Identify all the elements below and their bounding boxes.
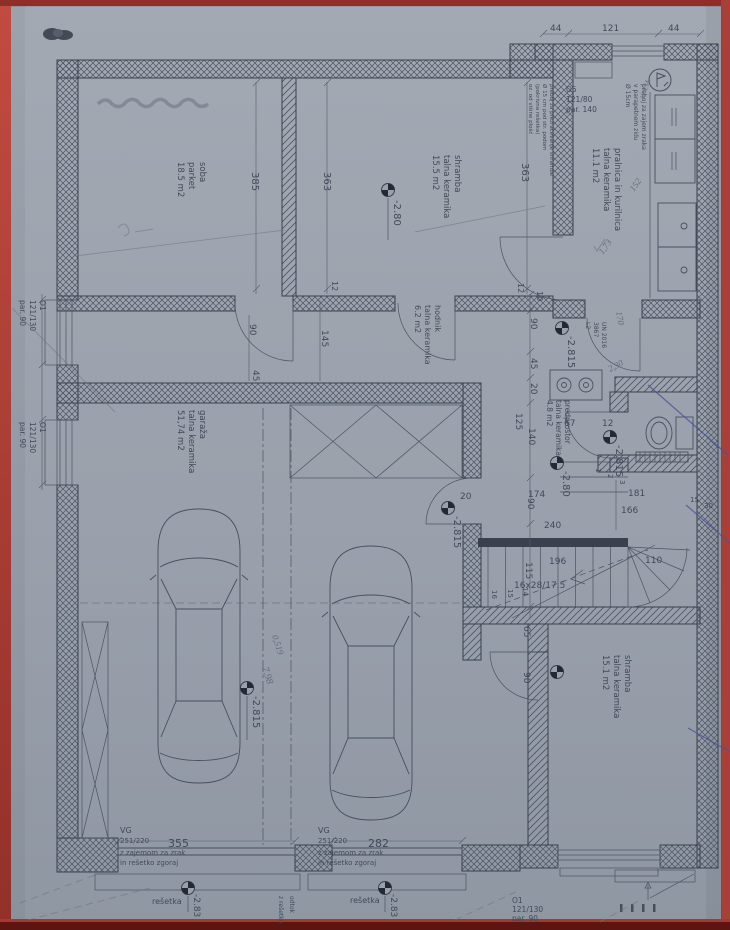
wall-exterior-right xyxy=(697,44,718,868)
note-z-resetko: z rešetko xyxy=(277,896,284,924)
room-pralnica-floor: talna keramika xyxy=(601,148,611,211)
wall-stair-bottom xyxy=(463,607,700,624)
wall-laundry-top-left xyxy=(535,44,612,60)
room-shramba-zg-area: 15.5 m2 xyxy=(430,155,440,190)
room-hodnik-area: 6.2 m2 xyxy=(413,305,422,333)
dim-10-chain: 10 xyxy=(535,291,544,301)
vg-left-size: 251/220 xyxy=(120,837,149,845)
level-label-280-a: -2.80 xyxy=(391,200,402,226)
dim-12-door: 12 xyxy=(330,281,339,291)
label-resetka-right: rešetka xyxy=(350,895,380,905)
vg-right-note2: in rešetko zgoraj xyxy=(318,859,376,867)
room-predprostor-floor: talna keramika xyxy=(554,400,563,456)
paper-shadow-left xyxy=(11,6,25,919)
wall-wc-bottom xyxy=(598,455,697,472)
room-hodnik-name: hodnik xyxy=(433,305,442,332)
level-marker-shramba-zgoraj xyxy=(382,184,395,197)
level-label-2815-c: -2.815 xyxy=(451,516,462,548)
room-garaza-floor: talna keramika xyxy=(186,410,196,473)
wall-garage-hodnik xyxy=(57,383,463,403)
dim-15: 15 xyxy=(690,496,699,504)
wall-wc-left-1 xyxy=(610,392,628,412)
room-shramba-zg-name: shramba xyxy=(452,155,462,192)
room-garaza-area: 51,74 m2 xyxy=(175,410,185,451)
room-shramba-sp-area: 15.1 m2 xyxy=(600,655,610,690)
stair-num-2: 2 xyxy=(606,474,614,478)
room-garaza-name: garaža xyxy=(197,410,207,439)
dim-145: 145 xyxy=(319,330,329,347)
wall-exterior-left-1 xyxy=(57,60,78,300)
red-edge-right xyxy=(721,0,730,930)
un-line3: L2 xyxy=(584,322,591,329)
note-odtok: odtok xyxy=(288,896,295,914)
dim-121: 121 xyxy=(602,24,619,34)
vg-right-size: 251/220 xyxy=(318,837,347,845)
level-marker-wc xyxy=(604,431,617,444)
label-resetka-left: rešetka xyxy=(152,896,182,906)
o1a-code: O1 xyxy=(38,300,47,311)
wall-predprostor-left-1 xyxy=(463,383,481,478)
dim-196: 196 xyxy=(549,557,566,567)
wall-corner-bottom-left xyxy=(57,838,118,872)
note-ps-2: Ø 15 cm pod str. podom xyxy=(541,84,548,150)
room-hodnik-floor: talna keramika xyxy=(423,305,432,365)
note-ps-3: (pokrivna rešetka) xyxy=(534,84,541,134)
stair-num-1: 1 xyxy=(594,468,602,472)
level-marker-shramba-spodaj xyxy=(551,666,564,679)
red-edge-left xyxy=(0,0,11,930)
room-shramba-sp-name: shramba xyxy=(622,655,632,692)
level-label-283-a: -2.83 xyxy=(191,894,201,917)
dim-385: 385 xyxy=(249,172,260,191)
stair-num-15: 15 xyxy=(506,589,514,598)
level-marker-garaza xyxy=(241,682,254,695)
o1c-size: 121/130 xyxy=(512,905,543,914)
o1b-size: 121/130 xyxy=(28,422,37,453)
dim-20-chain: 20 xyxy=(528,383,538,395)
stair-num-14: 14 xyxy=(521,587,529,596)
dim-44-right: 44 xyxy=(668,24,680,34)
dim-65: 65 xyxy=(521,626,531,637)
dim-90-corridor: 90 xyxy=(521,672,531,684)
level-marker-predprostor xyxy=(551,457,564,470)
dim-125: 125 xyxy=(513,413,523,430)
dim-20: 20 xyxy=(460,492,472,502)
wall-predprostor-left-2 xyxy=(463,524,481,607)
dim-30: 30 xyxy=(704,502,713,510)
dim-44-left: 44 xyxy=(550,24,562,34)
wall-exterior-bottom-1 xyxy=(520,845,558,868)
wall-exterior-bottom-2 xyxy=(660,845,700,868)
dim-12-chain: 12 xyxy=(516,283,525,293)
wall-garage-pier-right xyxy=(462,845,520,871)
vg-right-note1: z zajemom za zrak xyxy=(318,849,384,857)
wall-soba-bottom xyxy=(57,296,235,311)
level-label-2815-d: -2.815 xyxy=(250,696,261,728)
dim-45-chain: 45 xyxy=(528,358,538,369)
dim-90-chain: 90 xyxy=(528,318,538,330)
dim-12-wc: 12 xyxy=(602,419,613,429)
o5-code: O5 xyxy=(566,85,577,94)
un-line1: UN 2016 xyxy=(600,322,607,348)
room-pralnica-area: 11.1 m2 xyxy=(590,148,600,183)
dim-45-door: 45 xyxy=(250,370,260,381)
level-label-280-b: -2.80 xyxy=(560,471,571,497)
red-edge-top xyxy=(0,0,730,6)
stair-landing-edge xyxy=(478,538,628,547)
note-ps-4: oz. od višine plošč xyxy=(527,84,534,134)
level-label-2815-a: -2.815 xyxy=(565,336,576,368)
dim-115: 115 xyxy=(523,562,533,579)
red-edge-bottom xyxy=(0,922,730,930)
dim-140: 140 xyxy=(526,428,536,445)
level-marker-hodnik xyxy=(556,322,569,335)
o5-parapet: par. 140 xyxy=(566,105,597,114)
room-soba-floor: parket xyxy=(186,162,196,190)
room-shramba-zg-floor: talna keramika xyxy=(441,155,451,218)
dim-363-b: 363 xyxy=(519,163,530,182)
wall-exterior-top xyxy=(57,60,553,78)
wall-soba-shramba xyxy=(282,78,296,296)
level-label-283-b: -2.83 xyxy=(388,894,398,917)
room-predprostor-name: predprostor xyxy=(563,400,572,445)
o1c-code: O1 xyxy=(512,896,523,905)
dim-181: 181 xyxy=(628,489,645,499)
wall-corridor-stub-left xyxy=(463,624,481,660)
wall-laundry-bottom-2 xyxy=(642,300,700,318)
dim-363-a: 363 xyxy=(321,172,332,191)
level-marker-vhod-desno xyxy=(379,882,392,895)
dim-110: 110 xyxy=(645,556,662,566)
note-pp-3: Ø 15cm xyxy=(624,84,631,108)
scanned-floor-plan-photo: 44 121 44 174 240 196 16x28/17.5 181 166… xyxy=(0,0,730,930)
room-predprostor-area: 4.8 m2 xyxy=(545,400,554,427)
o1c-parapet: par. 90 xyxy=(512,914,538,923)
vg-right-code: VG xyxy=(318,826,330,835)
room-soba-name: soba xyxy=(197,162,207,182)
wall-shramba-bottom-1 xyxy=(293,296,395,311)
vg-left-note1: z zajemom za zrak xyxy=(120,849,186,857)
dim-240: 240 xyxy=(544,521,561,531)
o1b-parapet: par. 90 xyxy=(18,422,27,448)
wall-wc-top xyxy=(615,377,697,392)
note-pp-2: v parapetnem zidu xyxy=(632,84,639,141)
stair-num-16: 16 xyxy=(490,590,498,599)
note-ps-1: preboj za prezračevanje shrambe xyxy=(548,84,555,177)
dim-90-b: 90 xyxy=(525,498,535,510)
dim-166: 166 xyxy=(621,506,638,516)
level-marker-garaza-desno xyxy=(442,502,455,515)
o1a-size: 121/130 xyxy=(28,300,37,331)
dim-90-door: 90 xyxy=(247,324,257,336)
o5-size: 121/80 xyxy=(566,95,593,104)
room-shramba-sp-floor: talna keramika xyxy=(611,655,621,718)
level-label-2815-b: -2.815 xyxy=(613,445,624,477)
wall-exterior-left-3 xyxy=(57,485,78,838)
un-line2: 3867 xyxy=(592,322,599,337)
o1b-code: O1 xyxy=(38,422,47,433)
vg-left-code: VG xyxy=(120,826,132,835)
stair-num-3: 3 xyxy=(618,480,626,484)
vg-left-note2: in rešetko zgoraj xyxy=(120,859,178,867)
level-marker-vhod-levo xyxy=(182,882,195,895)
room-pralnica-name: pralnica in kurilnica xyxy=(612,148,622,231)
floor-plan-drawing: 44 121 44 174 240 196 16x28/17.5 181 166… xyxy=(0,0,730,930)
room-soba-area: 18.5 m2 xyxy=(175,162,185,197)
wall-laundry-bottom-1 xyxy=(553,300,585,318)
